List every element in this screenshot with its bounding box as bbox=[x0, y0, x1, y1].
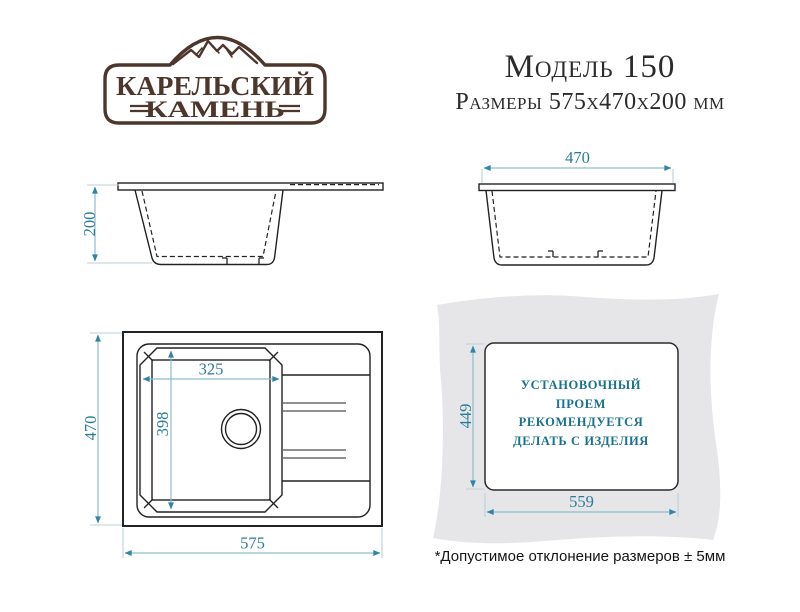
drain-hole-inner bbox=[226, 414, 257, 445]
side-section-view: 200 bbox=[80, 183, 383, 265]
dim-overall-width: 575 bbox=[123, 528, 382, 558]
dim-overall-depth-label: 470 bbox=[81, 416, 100, 441]
drainboard bbox=[282, 375, 370, 481]
dim-bowl-width: 325 bbox=[143, 360, 279, 380]
top-view: 325 398 470 575 bbox=[81, 332, 382, 558]
drain-hole-outer bbox=[222, 410, 261, 449]
installation-view: УСТАНОВОЧНЫЙ ПРОЕМ РЕКОМЕНДУЕТСЯ ДЕЛАТЬ … bbox=[433, 294, 720, 543]
installation-note-line1: УСТАНОВОЧНЫЙ bbox=[521, 378, 641, 392]
drain-recess-marks bbox=[548, 251, 603, 257]
dim-side-height-label: 200 bbox=[80, 212, 99, 237]
dim-cutout-width-label: 559 bbox=[569, 492, 594, 511]
installation-note-line2: ПРОЕМ bbox=[556, 397, 606, 411]
dim-front-width-label: 470 bbox=[565, 148, 590, 167]
dim-bowl-depth-label: 398 bbox=[153, 412, 172, 437]
dim-bowl-width-label: 325 bbox=[199, 360, 224, 379]
dim-side-height: 200 bbox=[80, 185, 152, 263]
drawing-area: 200 470 bbox=[0, 0, 800, 612]
front-section-view: 470 bbox=[479, 148, 675, 265]
dim-bowl-depth: 398 bbox=[153, 351, 172, 509]
tolerance-footnote: *Допустимое отклонение размеров ± 5мм bbox=[430, 548, 730, 565]
bowl-profile bbox=[486, 191, 662, 266]
bowl-inner-hidden-line bbox=[142, 191, 276, 257]
bowl-profile bbox=[135, 190, 283, 265]
dim-front-width: 470 bbox=[482, 148, 673, 183]
dim-cutout-height-label: 449 bbox=[456, 404, 475, 429]
dim-overall-depth: 470 bbox=[81, 333, 122, 525]
installation-note-line3: РЕКОМЕНДУЕТСЯ bbox=[519, 415, 644, 429]
dim-overall-width-label: 575 bbox=[240, 534, 265, 553]
drain-recess-marks bbox=[222, 258, 264, 265]
installation-note-line4: ДЕЛАТЬ С ИЗДЕЛИЯ bbox=[513, 434, 649, 448]
bowl-inner-hidden-line bbox=[492, 191, 656, 257]
drainboard-grooves bbox=[283, 403, 346, 458]
technical-drawing-page: КАРЕЛЬСКИЙ КАМЕНЬ Модель 150 Размеры 575… bbox=[0, 0, 800, 612]
